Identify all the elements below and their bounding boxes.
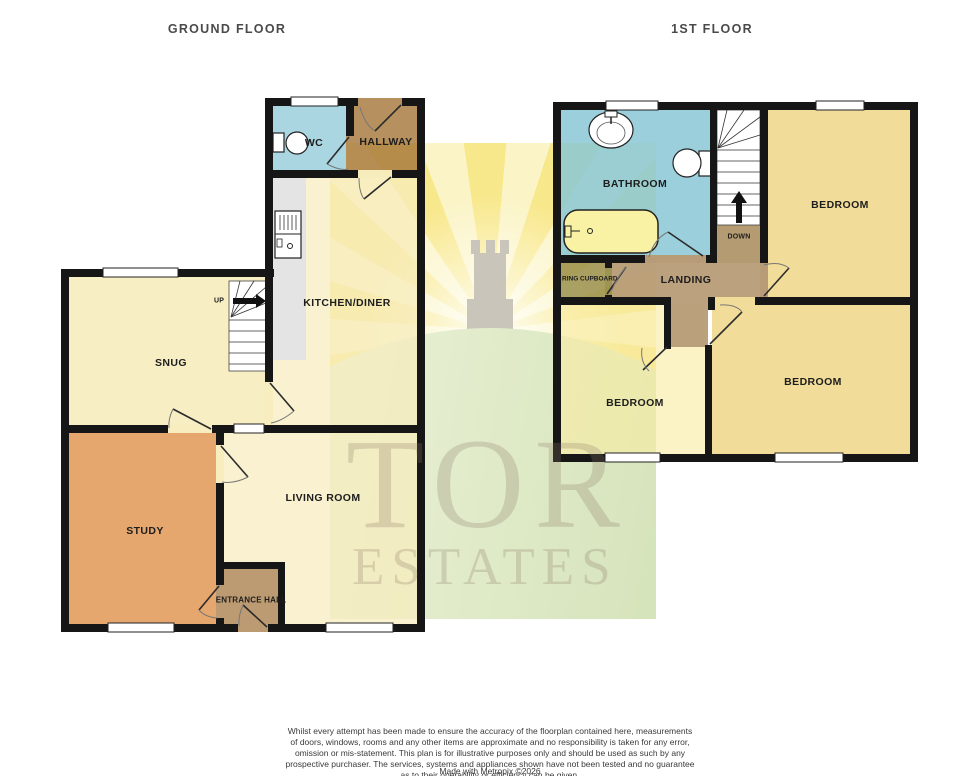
hallway-label: HALLWAY xyxy=(359,136,412,148)
bathroom-window xyxy=(606,101,658,110)
snug-window xyxy=(103,268,178,277)
metropix-credit: Made with Metropix ©2026 xyxy=(439,766,540,776)
snug-living-opening xyxy=(234,424,264,433)
bathtub xyxy=(564,210,658,253)
living-room-window xyxy=(326,623,393,632)
bedroom-bottom-left-label: BEDROOM xyxy=(606,397,664,409)
wc-window xyxy=(291,97,338,106)
stairs-down-landing xyxy=(715,225,760,263)
ground-floor-plan xyxy=(61,97,425,632)
bedroom-bl-window xyxy=(605,453,660,462)
stairs-up-label: UP xyxy=(214,298,224,305)
wc-toilet xyxy=(273,132,308,154)
landing-stub xyxy=(671,297,708,347)
landing-label: LANDING xyxy=(661,274,712,286)
bathroom-label: BATHROOM xyxy=(603,178,667,190)
down-arrow xyxy=(736,202,742,223)
stairs-ground xyxy=(229,281,266,371)
stairs-down-label: DOWN xyxy=(728,234,751,241)
airing-cupboard-label: RING CUPBOARD xyxy=(562,276,618,283)
stairs-first xyxy=(717,110,760,225)
bedroom-tr-window xyxy=(816,101,864,110)
snug-label: SNUG xyxy=(155,357,187,369)
first-floor-title: 1ST FLOOR xyxy=(671,22,753,36)
basin xyxy=(589,111,633,148)
ground-floor-title: GROUND FLOOR xyxy=(168,22,286,36)
wc-label: WC xyxy=(305,137,323,149)
bedroom-top-right-label: BEDROOM xyxy=(811,199,869,211)
living-room-label: LIVING ROOM xyxy=(286,492,361,504)
entrance-hall-label: ENTRANCE HALL xyxy=(216,596,287,605)
floorplan-page: TOR ESTATES GROUND FLOOR 1ST FLOOR WC HA… xyxy=(0,0,980,776)
up-arrow xyxy=(233,298,256,304)
floorplan-graphics xyxy=(0,0,980,776)
bedroom-bottom-right-label: BEDROOM xyxy=(784,376,842,388)
kitchen-sink xyxy=(275,211,301,258)
study-window xyxy=(108,623,174,632)
bedroom-br-window xyxy=(775,453,843,462)
kitchen-counter xyxy=(273,178,306,360)
kitchen-diner-label: KITCHEN/DINER xyxy=(303,297,390,309)
study-label: STUDY xyxy=(126,525,164,537)
toilet-first xyxy=(673,149,711,177)
